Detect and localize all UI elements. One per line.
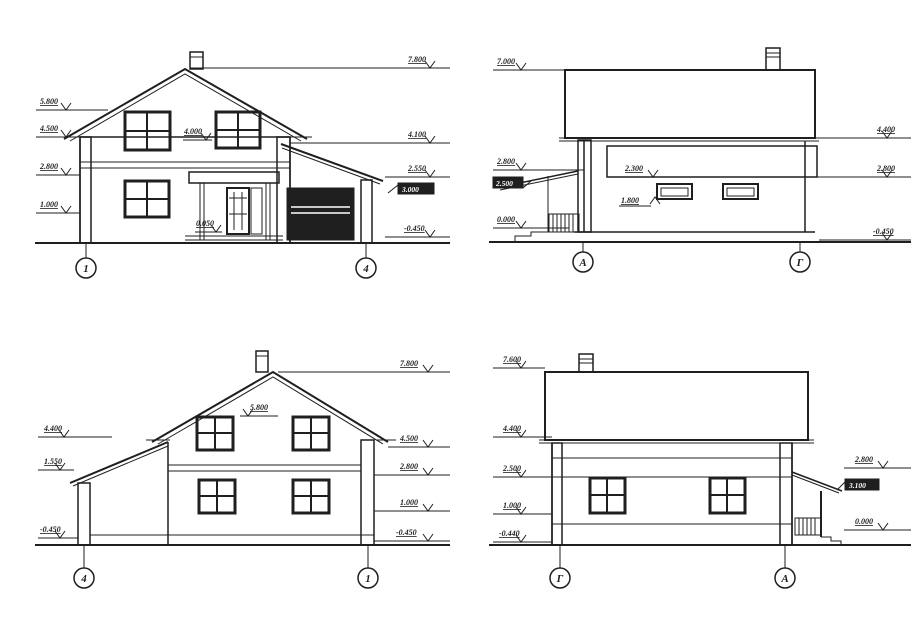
- level-value: 2.550: [407, 164, 426, 173]
- level-mark: 5.800: [36, 97, 108, 110]
- level-value: -0.450: [396, 528, 417, 537]
- chimney: [256, 351, 268, 372]
- level-mark: 1.000: [374, 498, 450, 511]
- axis-label: 1: [365, 573, 371, 585]
- level-value: 1.000: [400, 498, 418, 507]
- level-mark: 2.500: [493, 464, 552, 477]
- level-value: 5.800: [250, 403, 268, 412]
- level-value: 2.800: [39, 162, 58, 171]
- level-mark: 7.800: [190, 55, 450, 68]
- axis-label: Г: [796, 257, 804, 269]
- drawing-sheet: 5.800 4.500 2.800 1.000 7.800: [0, 0, 918, 642]
- level-value: 4.500: [399, 434, 418, 443]
- window: [197, 417, 233, 450]
- entry-door: [227, 188, 262, 234]
- level-mark: 4.000: [183, 127, 212, 140]
- panel-side-elevation-a-g: 7.000 2.800 2.500 0.000: [459, 0, 918, 321]
- level-mark: -0.450: [385, 224, 450, 237]
- level-mark: 4.500: [388, 434, 450, 447]
- axis-label: А: [578, 257, 586, 269]
- window: [216, 112, 260, 148]
- front-elevation-drawing: 5.800 4.500 2.800 1.000 7.800: [0, 0, 459, 321]
- window: [293, 480, 329, 513]
- axis-label: 1: [83, 263, 89, 275]
- level-mark: 0.000: [844, 517, 911, 530]
- level-mark: 2.800: [36, 162, 80, 175]
- axis-marker: 4: [74, 545, 94, 588]
- panel-front-elevation: 5.800 4.500 2.800 1.000 7.800: [0, 0, 459, 321]
- level-value: 7.600: [503, 355, 521, 364]
- level-mark: -0.450: [374, 528, 450, 541]
- level-value: 0.000: [855, 517, 873, 526]
- axis-label: 4: [80, 573, 87, 585]
- level-value: -0.450: [873, 227, 894, 236]
- level-value: 0.000: [497, 215, 515, 224]
- level-mark: 4.400: [493, 424, 552, 437]
- level-value: 1.000: [503, 501, 521, 510]
- level-value: 7.800: [400, 359, 418, 368]
- level-badge: 3.100: [837, 479, 879, 490]
- level-value: 1.550: [44, 457, 62, 466]
- level-mark: 2.800: [817, 164, 911, 177]
- chimney: [766, 48, 780, 70]
- level-value: 1.000: [40, 200, 58, 209]
- level-value: 0.050: [196, 219, 214, 228]
- porch: [792, 472, 842, 545]
- axis-marker: А: [573, 242, 593, 272]
- window: [657, 184, 692, 199]
- level-mark: 0.050: [195, 219, 222, 232]
- axis-marker: 1: [358, 545, 378, 588]
- level-mark: 7.600: [493, 355, 545, 368]
- level-value: 2.800: [496, 157, 515, 166]
- level-mark: 2.800: [844, 455, 911, 468]
- axis-label: Г: [556, 573, 564, 585]
- level-value: 7.000: [497, 57, 515, 66]
- level-mark: -0.440: [493, 529, 552, 542]
- level-mark: 4.500: [36, 124, 80, 137]
- level-mark: 4.400: [38, 424, 112, 437]
- level-mark: -0.450: [819, 227, 911, 240]
- axis-marker: 4: [356, 243, 376, 278]
- level-value: 4.400: [43, 424, 62, 433]
- level-value: 1.800: [621, 196, 639, 205]
- chimney: [579, 354, 593, 372]
- level-value: 3.100: [848, 481, 866, 490]
- level-value: 4.400: [876, 125, 895, 134]
- level-mark: 4.100: [290, 130, 450, 143]
- level-mark: 1.000: [36, 200, 80, 213]
- window: [293, 417, 329, 450]
- panel-side-elevation-g-a: 7.600 4.400 2.500 1.000 -0.440: [459, 321, 918, 642]
- level-mark: 2.300: [623, 164, 659, 177]
- level-mark: 5.800: [240, 403, 278, 416]
- level-value: 4.100: [407, 130, 426, 139]
- level-mark: 1.550: [38, 457, 74, 470]
- level-mark: 4.400: [815, 125, 911, 138]
- level-value: 4.500: [39, 124, 58, 133]
- level-mark: 2.800: [374, 462, 450, 475]
- window: [590, 478, 625, 513]
- window: [723, 184, 758, 199]
- level-value: -0.450: [404, 224, 425, 233]
- side-elevation-a-g-drawing: 7.000 2.800 2.500 0.000: [459, 0, 918, 321]
- wall: [552, 443, 792, 545]
- axis-marker: 1: [76, 243, 96, 278]
- level-value: -0.440: [499, 529, 520, 538]
- elevations-grid: 5.800 4.500 2.800 1.000 7.800: [0, 0, 918, 642]
- level-mark: 7.800: [278, 359, 450, 372]
- panel-rear-elevation: 4.400 1.550 -0.450 7.800 4.500: [0, 321, 459, 642]
- level-value: 2.300: [624, 164, 643, 173]
- level-badge: 3.000: [388, 183, 434, 194]
- window: [125, 181, 169, 217]
- level-value: 4.400: [502, 424, 521, 433]
- wall: [80, 137, 290, 243]
- level-mark: 7.000: [493, 57, 565, 70]
- roof: [539, 372, 814, 443]
- wall: [574, 140, 817, 232]
- window: [710, 478, 745, 513]
- level-value: 2.500: [502, 464, 521, 473]
- lean-to: [70, 442, 168, 545]
- axis-marker: А: [775, 545, 795, 588]
- level-value: 2.800: [876, 164, 895, 173]
- level-value: 5.800: [40, 97, 58, 106]
- level-mark: -0.450: [38, 525, 78, 538]
- axis-label: 4: [362, 263, 369, 275]
- rear-elevation-drawing: 4.400 1.550 -0.450 7.800 4.500: [0, 321, 459, 642]
- window: [125, 112, 170, 150]
- level-value: 2.800: [399, 462, 418, 471]
- level-value: 2.500: [495, 179, 513, 188]
- window: [199, 480, 235, 513]
- level-mark: 1.800: [619, 196, 660, 206]
- axis-label: А: [780, 573, 788, 585]
- level-value: 2.800: [854, 455, 873, 464]
- level-mark: 1.000: [493, 501, 552, 514]
- side-elevation-g-a-drawing: 7.600 4.400 2.500 1.000 -0.440: [459, 321, 918, 642]
- roof: [559, 70, 819, 141]
- level-value: -0.450: [40, 525, 61, 534]
- level-value: 7.800: [408, 55, 426, 64]
- garage: [281, 144, 383, 243]
- level-value: 4.000: [183, 127, 202, 136]
- level-value: 3.000: [401, 185, 419, 194]
- level-mark: 2.550: [385, 164, 450, 177]
- axis-marker: Г: [550, 545, 570, 588]
- roof: [146, 372, 396, 444]
- level-mark: 0.000: [493, 215, 569, 228]
- chimney: [190, 52, 203, 69]
- axis-marker: Г: [790, 242, 810, 272]
- level-mark: 2.800: [493, 157, 584, 170]
